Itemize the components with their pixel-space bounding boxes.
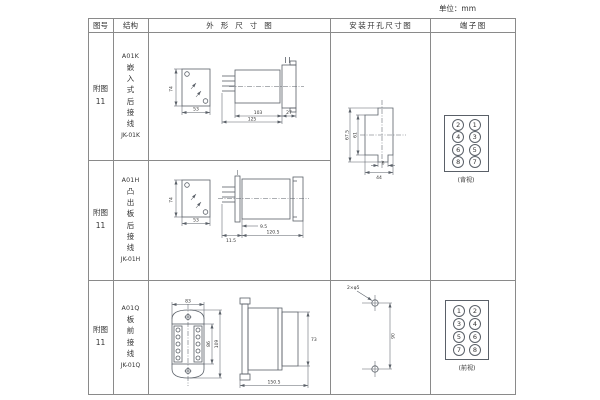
side-view: 103 27 125 [222,57,304,124]
terminal-circle: 7 [469,156,481,168]
grid-line [330,18,331,395]
front-view: 83 86 109 [172,299,222,387]
dim-label-front-height: 74 [169,86,175,92]
dim-label-front-width: 53 [193,107,199,113]
fig-no-cell-row3: 附图11 [88,280,113,394]
structure-cell-row3: A01Q 板前接线 JK-01Q [113,280,148,394]
grid-line [88,394,515,395]
header-outline: 外形尺寸图 [148,18,330,32]
dim-label-front-width: 53 [193,218,199,224]
side-view: 73 150.5 [240,298,317,388]
grid-line [515,18,516,395]
terminal-circle: 8 [452,156,464,168]
terminal-circle: 6 [452,144,464,156]
dim-label-cutout-outer-height: 67.5 [345,130,351,140]
dim-label-top-width: 83 [185,299,191,305]
structure-cell-row1: A01K 嵌入式后接线 JK-01K [113,32,148,160]
grid-line [88,32,515,33]
terminal-circle: 2 [452,119,464,131]
outline-diagram-a01q: 83 86 109 73 150.5 [158,286,323,394]
fig-no-text: 附图11 [93,207,108,233]
terminal-diagram-rows12: 2 1 4 3 6 5 8 7 [444,115,489,172]
terminal-circle: 4 [452,131,464,143]
structure-desc: 嵌入式后接线 [125,62,136,130]
structure-desc: 凸出板后接线 [125,186,136,254]
dim-label-side-height: 73 [311,337,317,343]
header-terminal: 端子图 [430,18,515,32]
outline-diagram-a01k: 74 53 103 27 125 [163,57,308,132]
fig-no-text: 附图11 [93,83,108,109]
dim-label-front-height: 74 [169,197,175,203]
structure-code: JK-01H [121,256,140,263]
dim-label-side-width: 150.5 [268,380,281,386]
fig-no-cell-row2: 附图11 [88,160,113,280]
terminal-circle: 2 [469,305,481,317]
header-fig-no: 图号 [88,18,113,32]
fig-no-cell-row1: 附图11 [88,32,113,160]
dim-label-inner-height: 86 [206,341,212,347]
structure-code: JK-01K [121,132,140,139]
structure-cell-row2: A01H 凸出板后接线 JK-01H [113,160,148,280]
outline-diagram-a01h: 74 53 9.5 11.5 120.5 [163,170,313,252]
dim-label-tab-width: 6 [382,161,385,167]
grid-line [88,280,515,281]
terminal-circle: 7 [453,344,465,356]
fig-no-text: 附图11 [93,324,108,350]
front-view: 74 53 [169,69,211,115]
terminal-circle: 3 [469,131,481,143]
terminal-circle: 8 [469,344,481,356]
dim-label-cutout-inner-height: 61 [353,132,359,138]
terminal-circle: 6 [469,331,481,343]
terminal-circle: 1 [469,119,481,131]
grid-line [430,18,431,395]
structure-desc: 板前接线 [125,314,136,359]
structure-code: JK-01Q [121,362,141,369]
terminal-circle: 4 [469,318,481,330]
mounting-diagram-row3: 90 2×φ5 [346,282,416,384]
dim-label-total-depth: 125 [248,117,257,123]
hole-callout-label: 2×φ5 [347,285,360,291]
structure-model: A01K [122,53,139,60]
dim-label-plate: 11.5 [226,238,236,244]
header-structure: 结构 [113,18,148,32]
front-view: 74 53 [169,180,211,226]
terminal-circle: 3 [453,318,465,330]
dim-label-flange-depth: 27 [286,110,292,116]
structure-model: A01Q [121,305,139,312]
dim-label-offset: 9.5 [260,224,267,230]
dim-label-outer-height: 109 [214,340,220,349]
spec-sheet-page: 单位：mm 图号 结构 外形尺寸图 安装开孔尺寸图 端子图 附图11 附图11 … [0,0,600,400]
side-view: 9.5 11.5 120.5 [218,170,309,244]
structure-model: A01H [122,177,140,184]
terminal-caption-rear-view: (背视) [436,175,496,184]
header-mounting: 安装开孔尺寸图 [330,18,430,32]
mounting-diagram-rows12: 67.5 61 6 44 [346,96,424,180]
grid-line [148,18,149,395]
terminal-circle: 5 [453,331,465,343]
unit-label: 单位：mm [430,3,485,14]
dim-label-body-depth: 120.5 [267,230,280,236]
dim-label-hole-spacing: 90 [391,333,397,339]
dim-label-cutout-width: 44 [376,175,382,181]
terminal-circle: 5 [469,144,481,156]
terminal-circle: 1 [453,305,465,317]
dim-label-body-depth: 103 [254,110,263,116]
terminal-diagram-row3: 1 2 3 4 5 6 7 8 [445,300,489,360]
terminal-caption-front-view: (前视) [437,363,497,372]
